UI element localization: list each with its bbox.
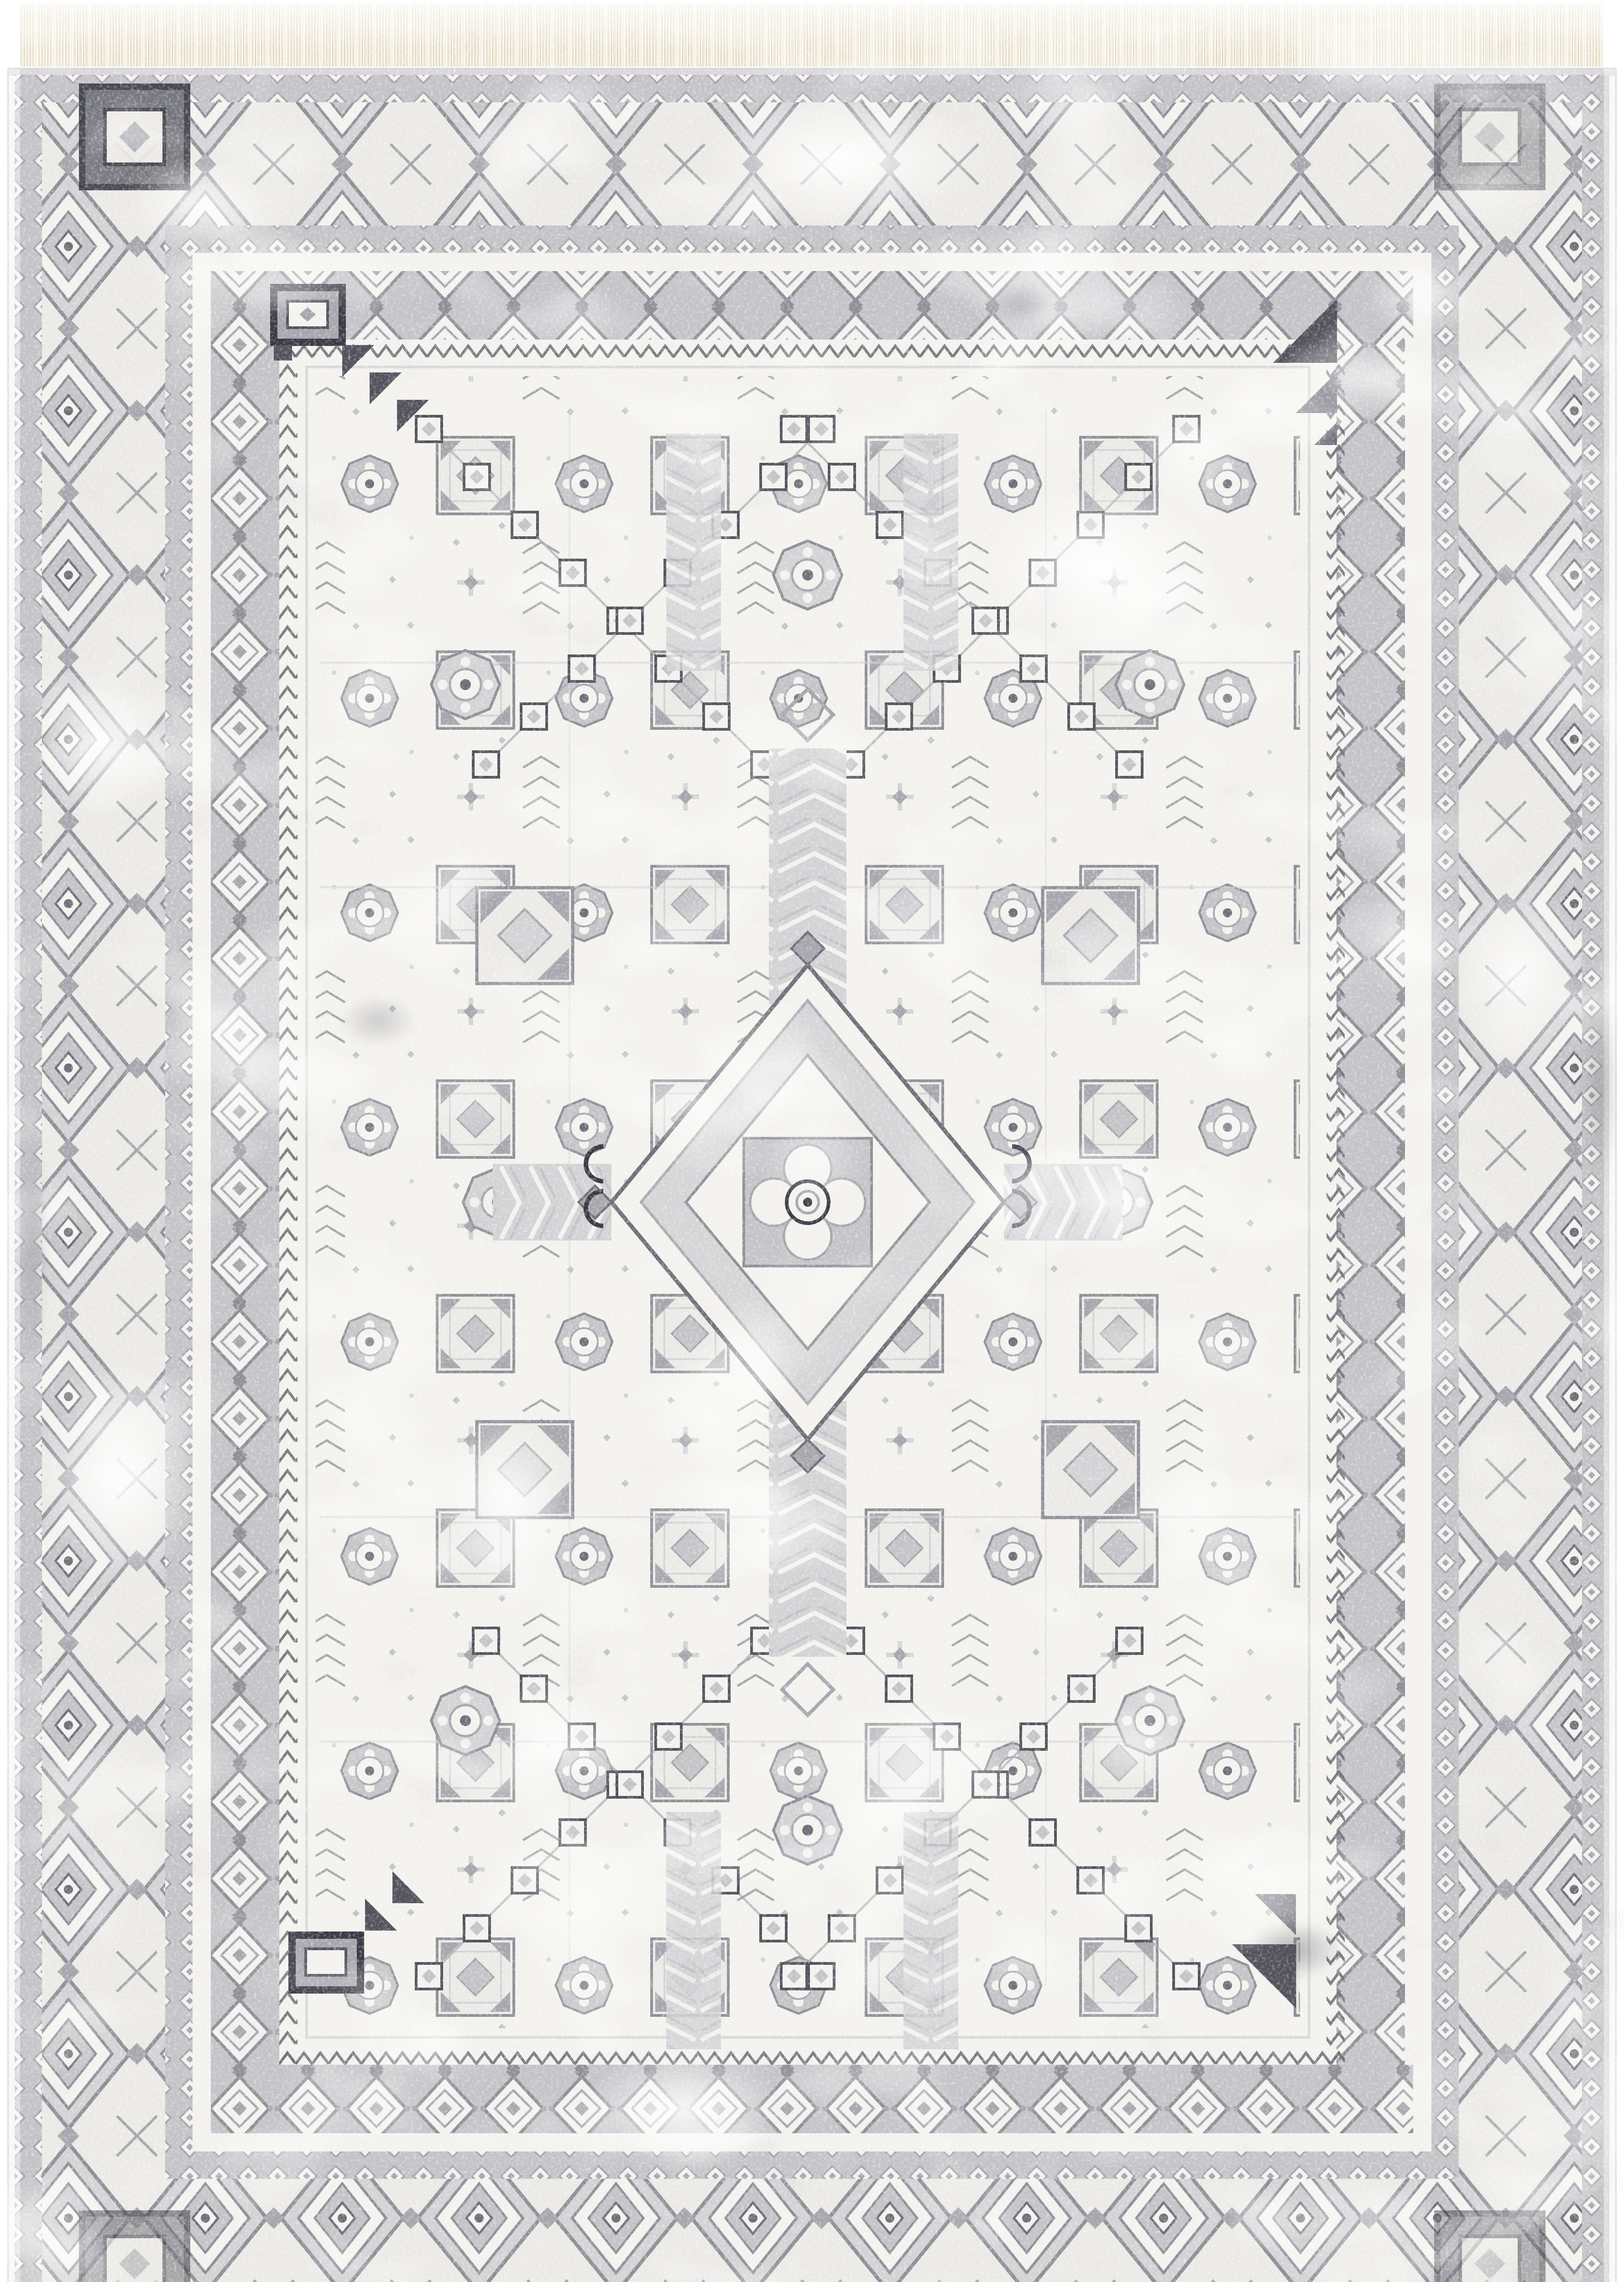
rug [0, 0, 1624, 2282]
distress-speckle [8, 68, 1616, 2282]
rug-product-photo [0, 0, 1624, 2282]
